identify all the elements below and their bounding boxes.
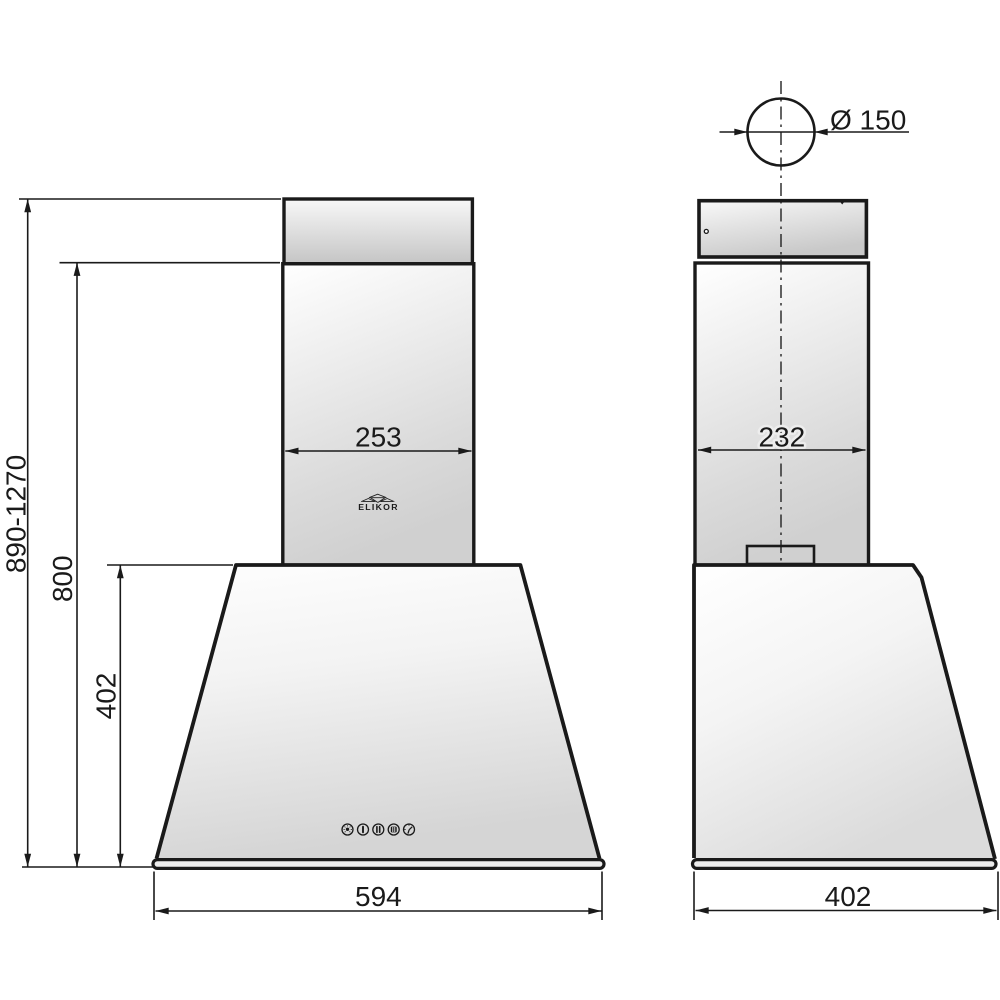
svg-text:ELIKOR: ELIKOR bbox=[358, 502, 399, 512]
svg-text:402: 402 bbox=[91, 673, 122, 720]
svg-text:800: 800 bbox=[47, 555, 78, 602]
svg-text:253: 253 bbox=[355, 422, 402, 453]
svg-text:402: 402 bbox=[825, 881, 872, 912]
svg-text:890-1270: 890-1270 bbox=[1, 455, 32, 573]
svg-text:594: 594 bbox=[355, 881, 402, 912]
svg-text:232: 232 bbox=[758, 422, 805, 453]
svg-text:Ø 150: Ø 150 bbox=[830, 105, 906, 136]
